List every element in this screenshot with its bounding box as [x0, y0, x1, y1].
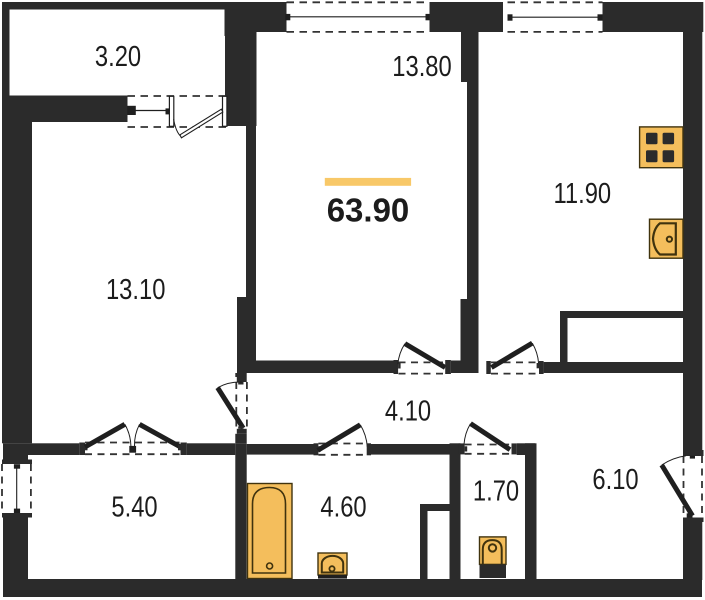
- svg-text:13.10: 13.10: [106, 273, 165, 306]
- svg-text:5.40: 5.40: [111, 490, 157, 523]
- svg-text:3.20: 3.20: [95, 40, 141, 73]
- svg-text:13.80: 13.80: [392, 50, 451, 83]
- svg-text:1.70: 1.70: [473, 474, 519, 507]
- svg-text:4.10: 4.10: [385, 394, 431, 427]
- svg-text:6.10: 6.10: [592, 463, 638, 496]
- svg-text:63.90: 63.90: [327, 192, 410, 229]
- svg-text:4.60: 4.60: [320, 490, 366, 523]
- svg-text:11.90: 11.90: [553, 177, 611, 210]
